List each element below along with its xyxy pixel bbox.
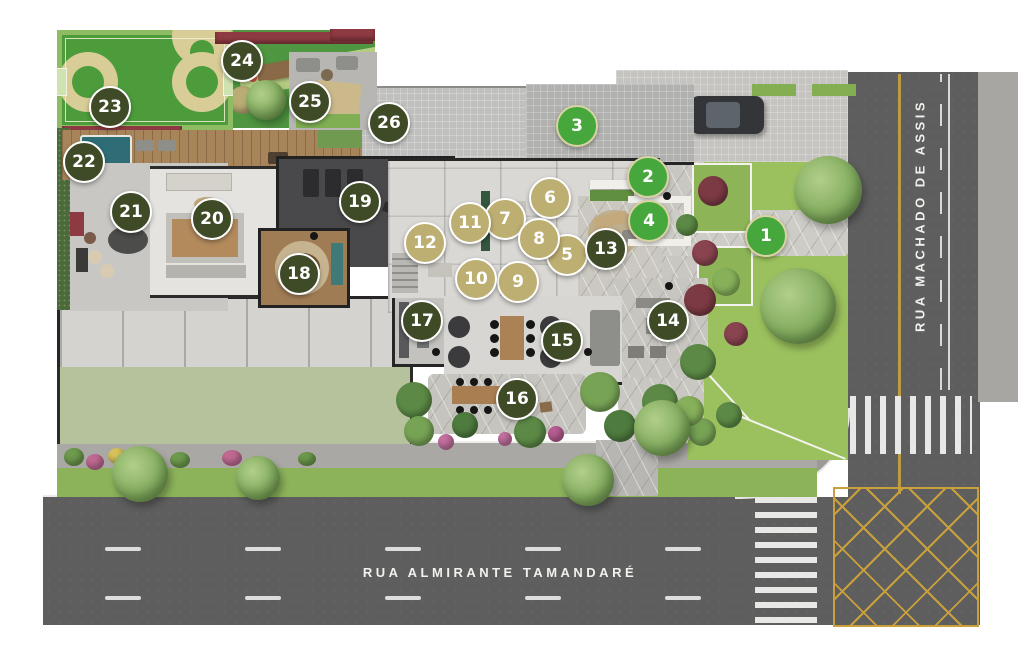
plan-marker-19[interactable]: 19 xyxy=(339,181,381,223)
markers-layer: 1234567891011121314151617181920212223242… xyxy=(0,0,1024,660)
plan-marker-21[interactable]: 21 xyxy=(110,191,152,233)
plan-marker-17[interactable]: 17 xyxy=(401,300,443,342)
plan-marker-22[interactable]: 22 xyxy=(63,141,105,183)
plan-marker-10[interactable]: 10 xyxy=(455,258,497,300)
plan-marker-13[interactable]: 13 xyxy=(585,228,627,270)
plan-marker-2[interactable]: 2 xyxy=(627,156,669,198)
plan-marker-24[interactable]: 24 xyxy=(221,40,263,82)
plan-marker-11[interactable]: 11 xyxy=(449,202,491,244)
plan-marker-9[interactable]: 9 xyxy=(497,261,539,303)
plan-marker-14[interactable]: 14 xyxy=(647,300,689,342)
plan-marker-6[interactable]: 6 xyxy=(529,177,571,219)
plan-marker-25[interactable]: 25 xyxy=(289,81,331,123)
plan-marker-3[interactable]: 3 xyxy=(556,105,598,147)
plan-marker-4[interactable]: 4 xyxy=(628,200,670,242)
plan-marker-15[interactable]: 15 xyxy=(541,320,583,362)
site-plan: ♿ ♿ RUA ALMIRANTE TAMANDARÉ RUA MACHADO … xyxy=(0,0,1024,660)
plan-marker-23[interactable]: 23 xyxy=(89,86,131,128)
plan-marker-26[interactable]: 26 xyxy=(368,102,410,144)
plan-marker-1[interactable]: 1 xyxy=(745,215,787,257)
plan-marker-8[interactable]: 8 xyxy=(518,218,560,260)
plan-marker-20[interactable]: 20 xyxy=(191,198,233,240)
plan-marker-18[interactable]: 18 xyxy=(278,253,320,295)
plan-marker-16[interactable]: 16 xyxy=(496,378,538,420)
plan-marker-12[interactable]: 12 xyxy=(404,222,446,264)
